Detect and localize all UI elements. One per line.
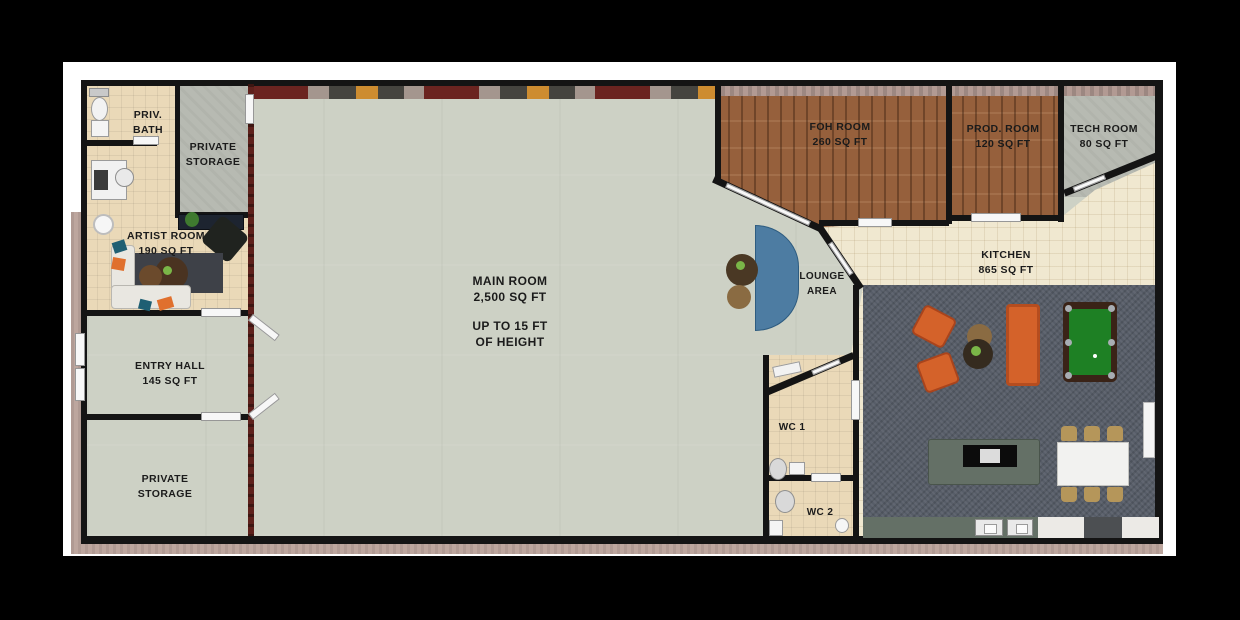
wall-outer-right bbox=[1155, 80, 1163, 544]
wall-foh-prod-divider bbox=[946, 84, 952, 224]
wc2-urinal bbox=[835, 518, 849, 533]
table-decor bbox=[163, 266, 172, 275]
desk-chair bbox=[115, 168, 134, 187]
room-label-kitchen: KITCHEN 865 SQ FT bbox=[979, 248, 1034, 278]
pool-table bbox=[1063, 302, 1117, 382]
room-label-prod-room: PROD. ROOM 120 SQ FT bbox=[967, 122, 1040, 152]
pillow-orange-1 bbox=[111, 257, 126, 271]
pool-pocket bbox=[1108, 372, 1115, 379]
dining-chair bbox=[1084, 487, 1100, 502]
mirror-table bbox=[93, 214, 114, 235]
bath-sink bbox=[91, 120, 109, 137]
pool-pocket bbox=[1065, 339, 1072, 346]
top-rooms-wall-finish bbox=[721, 86, 1155, 96]
room-label-private-storage-bottom: PRIVATE STORAGE bbox=[138, 472, 193, 502]
dining-chair bbox=[1084, 426, 1100, 441]
pool-pocket bbox=[1108, 305, 1115, 312]
wall-main-room-left-brick bbox=[248, 84, 254, 536]
room-label-foh-room: FOH ROOM 260 SQ FT bbox=[810, 120, 871, 150]
pool-ball bbox=[1093, 354, 1097, 358]
foh-kitchen-door bbox=[858, 218, 892, 227]
entrance-double-door-upper bbox=[75, 333, 85, 366]
wall-wc-left bbox=[763, 355, 769, 540]
room-label-entry-hall: ENTRY HALL 145 SQ FT bbox=[135, 359, 205, 389]
entry-storage-door bbox=[201, 412, 241, 421]
pool-pocket bbox=[1108, 339, 1115, 346]
dining-table bbox=[1057, 442, 1129, 486]
prod-kitchen-door bbox=[971, 213, 1021, 222]
main-room-top-wall-finish bbox=[253, 86, 715, 99]
wc2-door bbox=[811, 473, 841, 482]
storage-top-door bbox=[245, 94, 254, 124]
sink-basin bbox=[1016, 524, 1028, 534]
wc1-sink bbox=[789, 462, 805, 475]
wc2-toilet bbox=[775, 490, 795, 513]
room-label-priv-bath: PRIV. BATH bbox=[133, 108, 163, 138]
lounge-coffee-table-dark bbox=[726, 254, 758, 286]
counter-white-section bbox=[1038, 517, 1084, 538]
room-label-main-room: MAIN ROOM 2,500 SQ FT bbox=[473, 273, 548, 305]
entrance-double-door-lower bbox=[75, 368, 85, 401]
sofa-orange bbox=[1006, 304, 1040, 386]
lounge-coffee-table-tan bbox=[727, 285, 751, 309]
room-label-artist-room: ARTIST ROOM 190 SQ FT bbox=[127, 229, 205, 259]
room-label-private-storage-top: PRIVATE STORAGE bbox=[186, 140, 241, 170]
sink-unit bbox=[1007, 519, 1033, 536]
floor-prod-room bbox=[949, 84, 1058, 222]
lounge-table-decor bbox=[736, 261, 745, 270]
plant bbox=[185, 212, 199, 227]
wall-cabinet bbox=[1143, 402, 1155, 458]
artist-entry-door bbox=[201, 308, 241, 317]
pool-pocket bbox=[1065, 305, 1072, 312]
dining-chair bbox=[1107, 426, 1123, 441]
wc1-toilet bbox=[769, 458, 787, 480]
dining-chair bbox=[1061, 426, 1077, 441]
toilet bbox=[89, 88, 109, 97]
dining-chair bbox=[1061, 487, 1077, 502]
sink-unit bbox=[975, 519, 1003, 536]
pool-pocket bbox=[1065, 372, 1072, 379]
wall-prod-tech-divider bbox=[1058, 84, 1064, 222]
room-label-wc1: WC 1 bbox=[779, 420, 806, 435]
wc2-sink bbox=[769, 520, 783, 536]
side-table-decor bbox=[971, 346, 981, 356]
cooktop-panel bbox=[980, 449, 1000, 463]
room-label-lounge: LOUNGE AREA bbox=[799, 269, 844, 299]
wall-outer-top bbox=[81, 80, 1163, 86]
desk-monitor bbox=[94, 170, 108, 190]
room-label-main-room-height: UP TO 15 FT OF HEIGHT bbox=[472, 318, 547, 350]
wall-bath-storage-divider bbox=[175, 84, 180, 215]
room-label-tech-room: TECH ROOM 80 SQ FT bbox=[1070, 122, 1138, 152]
dining-chair bbox=[1107, 487, 1123, 502]
pool-table-felt bbox=[1069, 309, 1111, 375]
floor-plan-canvas: PRIV. BATH PRIVATE STORAGE ARTIST ROOM 1… bbox=[63, 62, 1176, 556]
wall-foh-left bbox=[715, 84, 721, 182]
toilet-bowl bbox=[91, 97, 108, 121]
sink-basin bbox=[984, 524, 997, 534]
room-label-wc2: WC 2 bbox=[807, 505, 834, 520]
counter-dark-section bbox=[1084, 517, 1122, 538]
kitchen-carpet-door bbox=[851, 380, 860, 420]
counter-corner-white bbox=[1122, 517, 1159, 538]
